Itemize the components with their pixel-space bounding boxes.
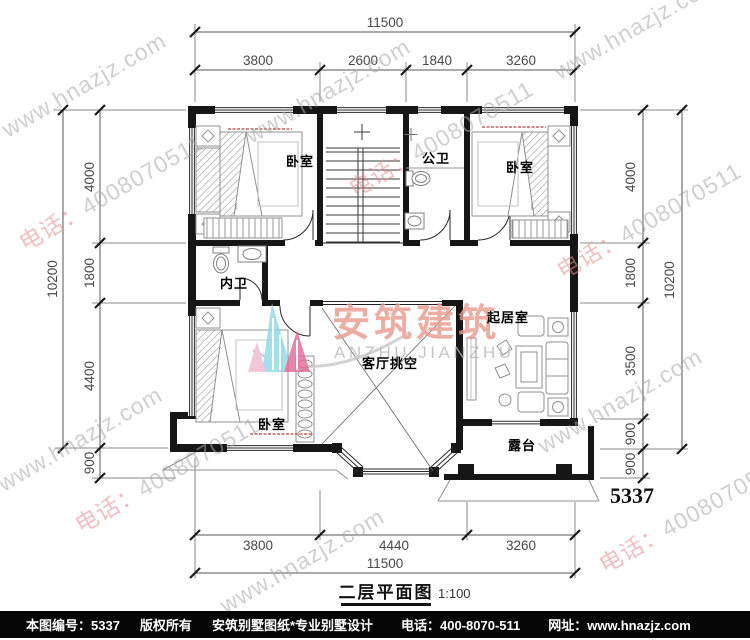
drawing-sheet: 11500 3800 2600 1840 3260 3800 4440 3260…	[0, 0, 750, 640]
watermark-phone: 电话：4008070511	[592, 446, 750, 580]
watermark-phone: 电话：4008070511	[342, 70, 539, 204]
footer-copyright: 版权所有	[140, 615, 192, 634]
watermark-url: www.hnazjz.com	[0, 27, 171, 143]
footer-phone: 电话：400-8070-511	[401, 615, 520, 634]
watermark-url: www.hnazjz.com	[0, 381, 167, 497]
footer-website: 网址：www.hnazjz.com	[548, 615, 691, 634]
footer-bar: 本图编号：5337 版权所有 安筑别墅图纸*专业别墅设计 电话：400-8070…	[0, 611, 750, 638]
watermark-url: www.hnazjz.com	[241, 33, 415, 149]
watermark-url: www.hnazjz.com	[215, 503, 389, 612]
watermark-phone: 电话：4008070511	[68, 406, 265, 540]
footer-studio: 安筑别墅图纸*专业别墅设计	[212, 615, 373, 634]
watermark-phone: 电话：4008070511	[12, 124, 209, 258]
footer-sheet-number: 本图编号：5337	[26, 615, 120, 634]
watermark-url: www.hnazjz.com	[549, 0, 723, 85]
watermark-url: www.hnazjz.com	[533, 343, 707, 459]
watermark-phone: 电话：4008070511	[550, 152, 747, 286]
watermark-layer: www.hnazjz.com www.hnazjz.com www.hnazjz…	[0, 0, 750, 612]
